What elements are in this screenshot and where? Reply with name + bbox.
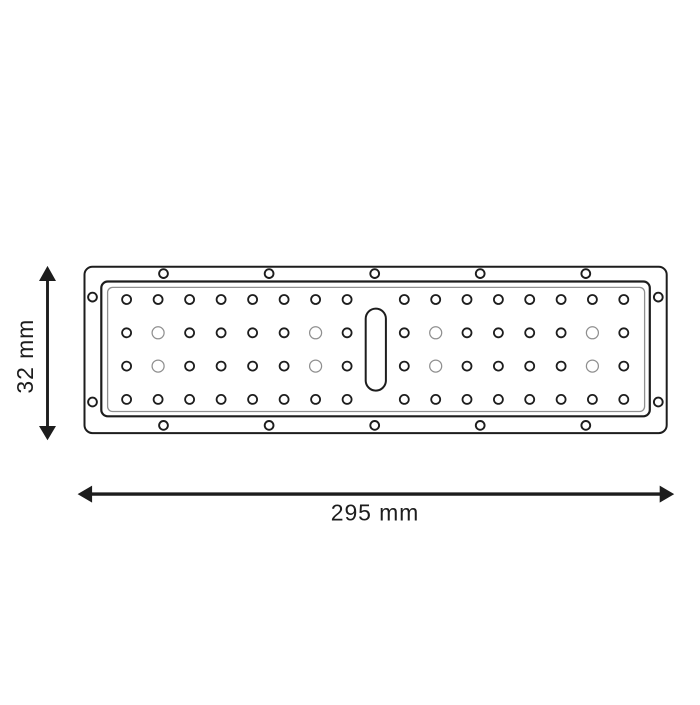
- svg-text:295 mm: 295 mm: [331, 500, 419, 526]
- svg-text:32 mm: 32 mm: [12, 319, 38, 394]
